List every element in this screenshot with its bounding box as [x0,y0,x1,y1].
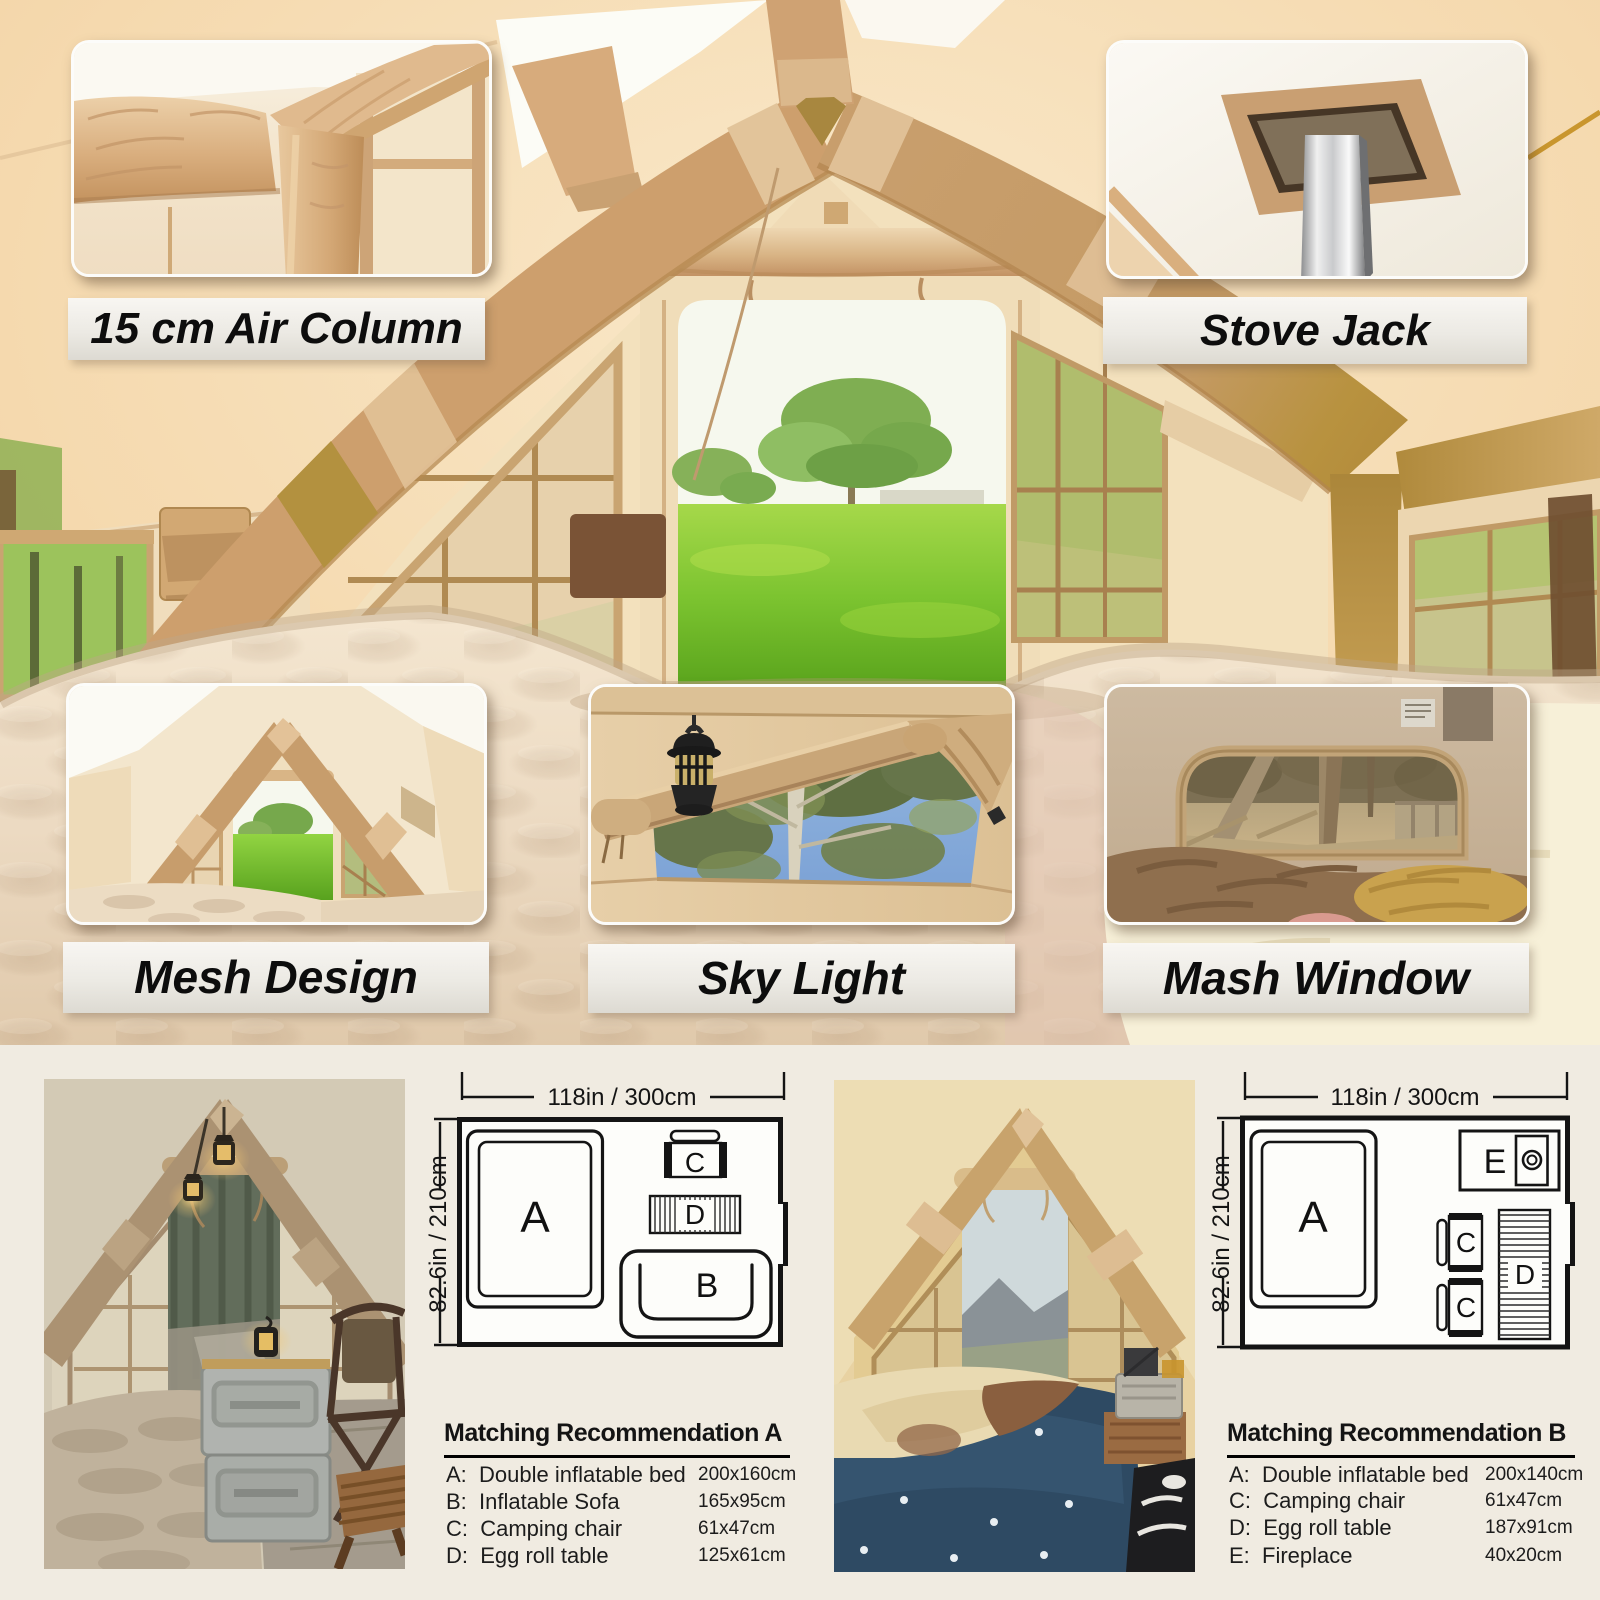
svg-text:C: C [1456,1292,1476,1323]
svg-text:C: C [1456,1227,1476,1258]
svg-text:D: D [1515,1259,1535,1290]
svg-text:D: D [685,1199,705,1230]
svg-text:A: A [520,1193,550,1242]
svg-text:E: E [1484,1143,1507,1181]
svg-text:118in / 300cm: 118in / 300cm [548,1084,697,1111]
svg-text:118in / 300cm: 118in / 300cm [1331,1084,1480,1111]
svg-text:B: B [696,1267,719,1305]
svg-text:C: C [685,1147,705,1178]
svg-text:A: A [1298,1193,1328,1242]
svg-text:82.6in / 210cm: 82.6in / 210cm [425,1155,452,1312]
svg-text:82.6in / 210cm: 82.6in / 210cm [1208,1155,1235,1312]
